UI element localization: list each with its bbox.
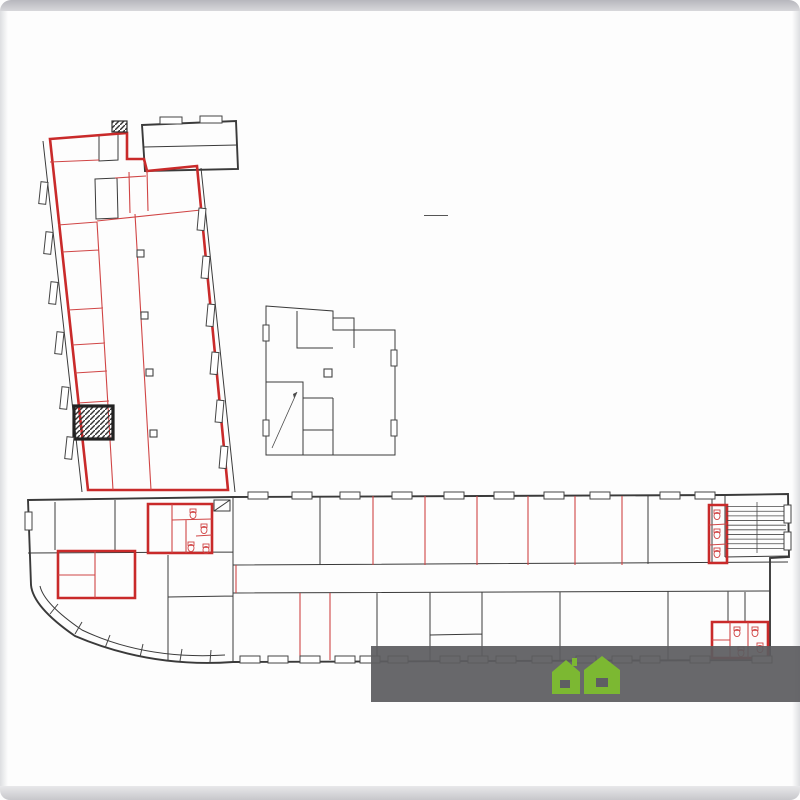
- watermark-banner: [371, 646, 800, 702]
- photo-page: [0, 0, 800, 800]
- highlighted-unit-walls: [50, 133, 768, 660]
- floor-number: [424, 197, 448, 216]
- windows: [25, 116, 791, 663]
- photo-edge-bottom: [0, 786, 800, 800]
- watermark-house-icon: [550, 652, 622, 696]
- outer-walls: [28, 121, 789, 663]
- floor-title: [424, 197, 448, 215]
